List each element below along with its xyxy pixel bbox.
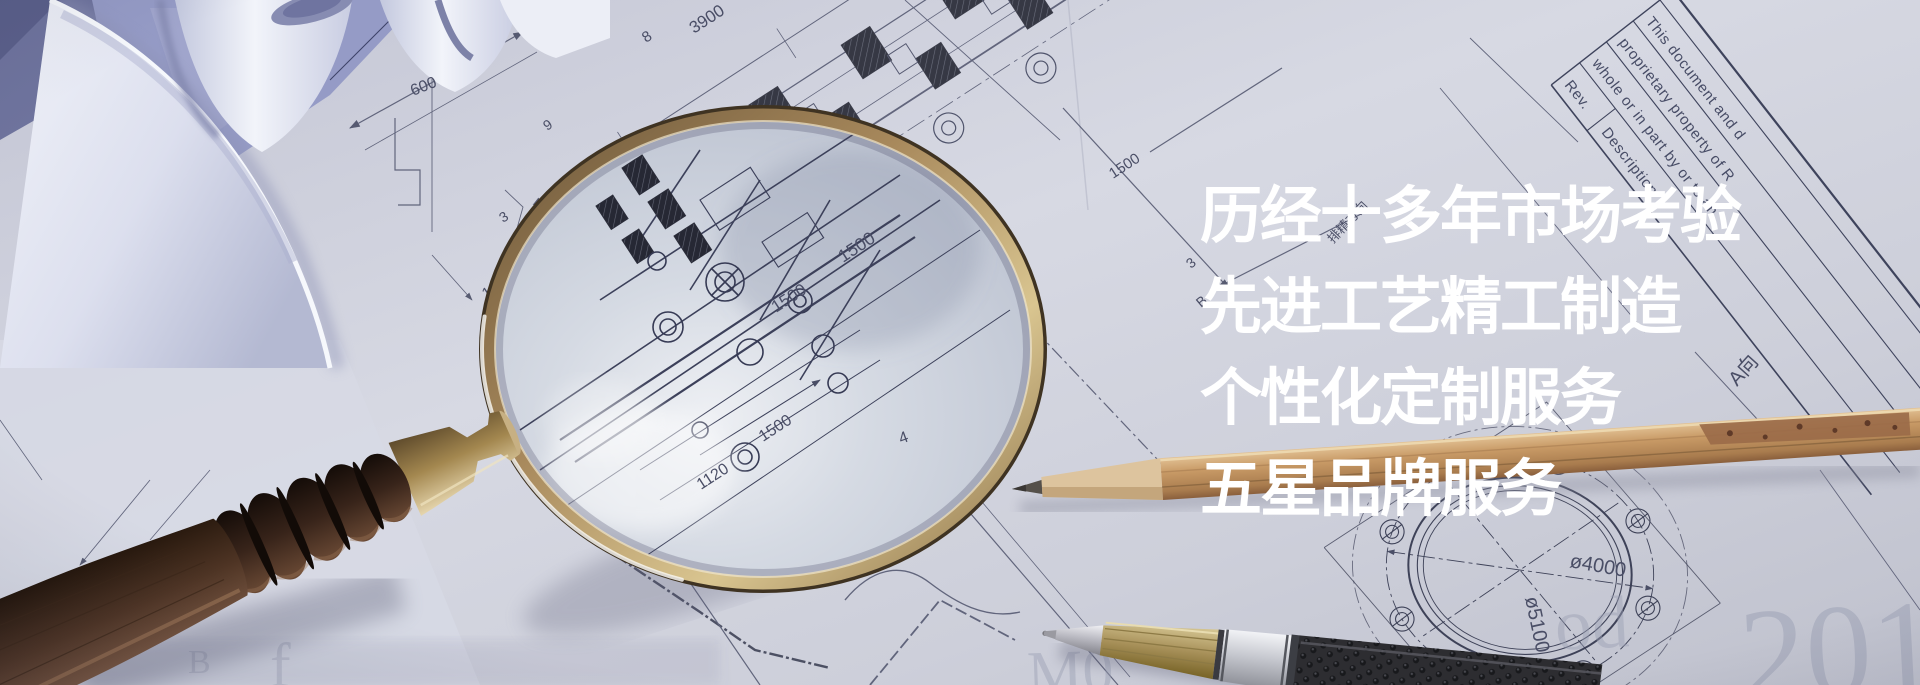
slogan-line-1: 历经十多年市场考验 [1200, 186, 1740, 248]
hero-banner: This document and d proprietary property… [0, 0, 1920, 685]
slogan-line-3: 个性化定制服务 [1200, 368, 1740, 430]
slogan-line-2: 先进工艺精工制造 [1200, 277, 1740, 339]
hero-slogan: 历经十多年市场考验 先进工艺精工制造 个性化定制服务 五星品牌服务 [1200, 186, 1740, 550]
slogan-line-4: 五星品牌服务 [1200, 459, 1740, 521]
